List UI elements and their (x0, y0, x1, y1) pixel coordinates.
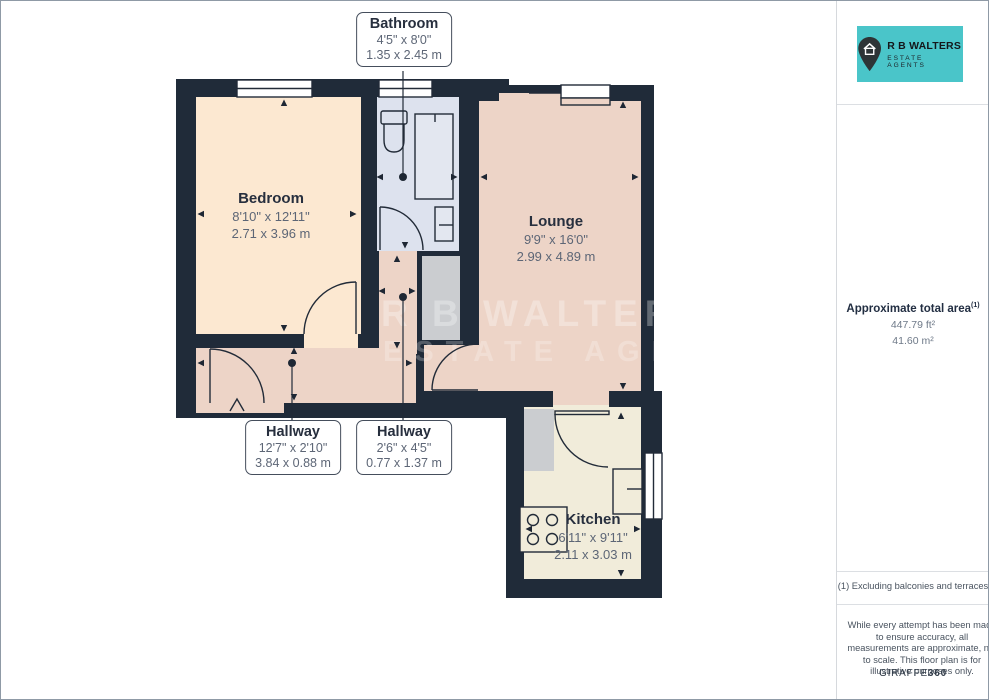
room-dim-metric: 2.11 x 3.03 m (554, 547, 632, 562)
room-name: Hallway (366, 424, 442, 440)
fridge (524, 409, 554, 471)
footnote-marker: (1) (971, 302, 980, 309)
entry-nook-floor (196, 348, 284, 413)
floorplan-page: R B WALTERS ESTATE AGENTS (0, 0, 989, 700)
room-dim-metric: 2.71 x 3.96 m (232, 226, 311, 241)
room-dim-metric: 2.99 x 4.89 m (517, 249, 596, 264)
provider-suffix: 360 (928, 668, 947, 679)
hallway-small-floor (379, 251, 417, 354)
bathroom-floor (377, 97, 459, 251)
room-name: Bedroom (232, 190, 311, 207)
area-footnote: (1) Excluding balconies and terraces (837, 581, 989, 591)
hallway-long-tag: Hallway 12'7" x 2'10" 3.84 x 0.88 m (245, 420, 341, 475)
room-dim-imperial: 9'9" x 16'0" (517, 232, 596, 247)
sidebar-divider-vertical (836, 1, 837, 700)
room-name: Hallway (255, 424, 331, 440)
agency-logo: R B WALTERS ESTATE AGENTS (857, 26, 963, 82)
total-area-metric: 41.60 m² (837, 335, 989, 347)
room-dim-imperial: 2'6" x 4'5" (366, 441, 442, 455)
provider-name: GIRAFFE (879, 668, 928, 679)
room-name: Kitchen (554, 511, 632, 528)
room-name: Lounge (517, 213, 596, 230)
total-area-title: Approximate total area(1) (837, 302, 989, 315)
agency-name: R B WALTERS (887, 40, 963, 52)
map-pin-house-icon (857, 35, 882, 73)
bathroom-tag: Bathroom 4'5" x 8'0" 1.35 x 2.45 m (356, 12, 452, 67)
agency-subtitle: ESTATE AGENTS (887, 55, 963, 69)
storage-area (422, 256, 460, 340)
room-dim-imperial: 8'10" x 12'11" (232, 209, 311, 224)
room-name: Bathroom (366, 16, 442, 32)
lounge-entry-strip (424, 345, 479, 391)
kitchen-label: Kitchen 6'11" x 9'11" 2.11 x 3.03 m (554, 511, 632, 562)
provider-logo: GIRAFFE360 (837, 668, 989, 679)
sidebar-divider-1 (837, 104, 989, 105)
sidebar-divider-2 (837, 571, 989, 572)
total-area-block: Approximate total area(1) 447.79 ft² 41.… (837, 302, 989, 347)
lounge-floor-notch (499, 93, 561, 103)
room-dim-metric: 1.35 x 2.45 m (366, 48, 442, 62)
room-dim-imperial: 4'5" x 8'0" (366, 33, 442, 47)
room-dim-imperial: 6'11" x 9'11" (554, 530, 632, 545)
room-dim-imperial: 12'7" x 2'10" (255, 441, 331, 455)
sidebar-divider-3 (837, 604, 989, 605)
bedroom-label: Bedroom 8'10" x 12'11" 2.71 x 3.96 m (232, 190, 311, 241)
agency-logo-text: R B WALTERS ESTATE AGENTS (887, 40, 963, 69)
hallway-small-tag: Hallway 2'6" x 4'5" 0.77 x 1.37 m (356, 420, 452, 475)
total-area-imperial: 447.79 ft² (837, 319, 989, 331)
room-dim-metric: 3.84 x 0.88 m (255, 456, 331, 470)
lounge-label: Lounge 9'9" x 16'0" 2.99 x 4.89 m (517, 213, 596, 264)
bedroom-door-opening (304, 334, 358, 348)
room-dim-metric: 0.77 x 1.37 m (366, 456, 442, 470)
